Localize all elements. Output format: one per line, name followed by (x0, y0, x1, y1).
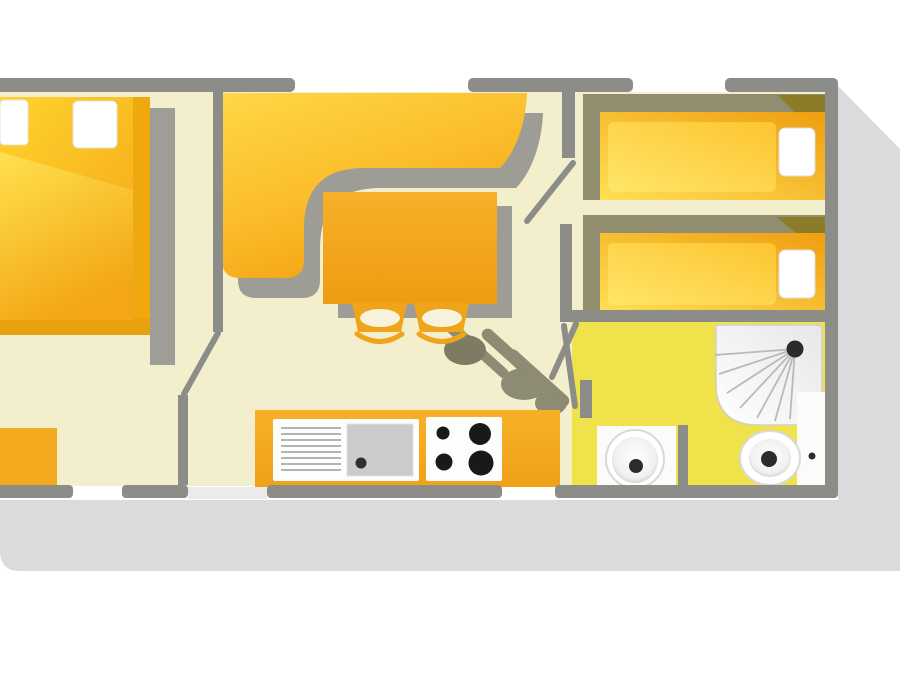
burner-large-bottom (469, 451, 494, 476)
wall-bottom-4 (555, 485, 838, 498)
wall-master-partition-upper (213, 92, 223, 332)
entrance-door-gap (188, 487, 267, 499)
pillow-right (73, 101, 117, 148)
wall-right (825, 78, 838, 498)
wardrobe-cabinet (0, 428, 57, 487)
toilet-drain (761, 451, 777, 467)
floorplan-canvas (0, 0, 900, 675)
chair-1-seat (360, 309, 400, 327)
wall-bottom-2 (122, 485, 188, 498)
double-bed-shadow (150, 108, 175, 365)
wall-basin-toilet-divider (678, 425, 688, 487)
single-bed-upper-pillow (779, 128, 815, 176)
toilet-cistern (797, 392, 825, 487)
wall-top-right (725, 78, 838, 92)
wall-top-middle (468, 78, 633, 92)
wall-bottom-1 (0, 485, 73, 498)
toilet-flush-button (809, 453, 816, 460)
hob (426, 417, 502, 481)
floorplan (0, 0, 900, 675)
single-bed-lower-pillow (779, 250, 815, 298)
sink-drain (356, 458, 367, 469)
double-bed-foot-edge (0, 318, 150, 335)
double-bed-right-edge (133, 97, 150, 335)
wall-twin-partition-upper (562, 92, 575, 158)
dining-table (323, 192, 497, 304)
single-bed-lower-duvet (608, 243, 776, 305)
burner-small-bottom (436, 454, 453, 471)
single-bed-upper-duvet (608, 122, 776, 192)
washbasin-drain (629, 459, 643, 473)
burner-small-top (437, 427, 450, 440)
room-kitchen (255, 410, 560, 487)
chair-2-seat (422, 309, 462, 327)
sink-basin (347, 424, 413, 476)
pillow-left (0, 100, 28, 145)
wall-master-partition-lower (178, 395, 188, 485)
wall-bottom-3 (267, 485, 502, 498)
wall-top-left (0, 78, 295, 92)
wall-twin-bathroom (560, 310, 825, 322)
shower-drain (787, 341, 804, 358)
wall-twin-partition-lower (560, 224, 572, 322)
burner-large-top (469, 423, 491, 445)
wall-bathroom-stub (580, 380, 592, 418)
